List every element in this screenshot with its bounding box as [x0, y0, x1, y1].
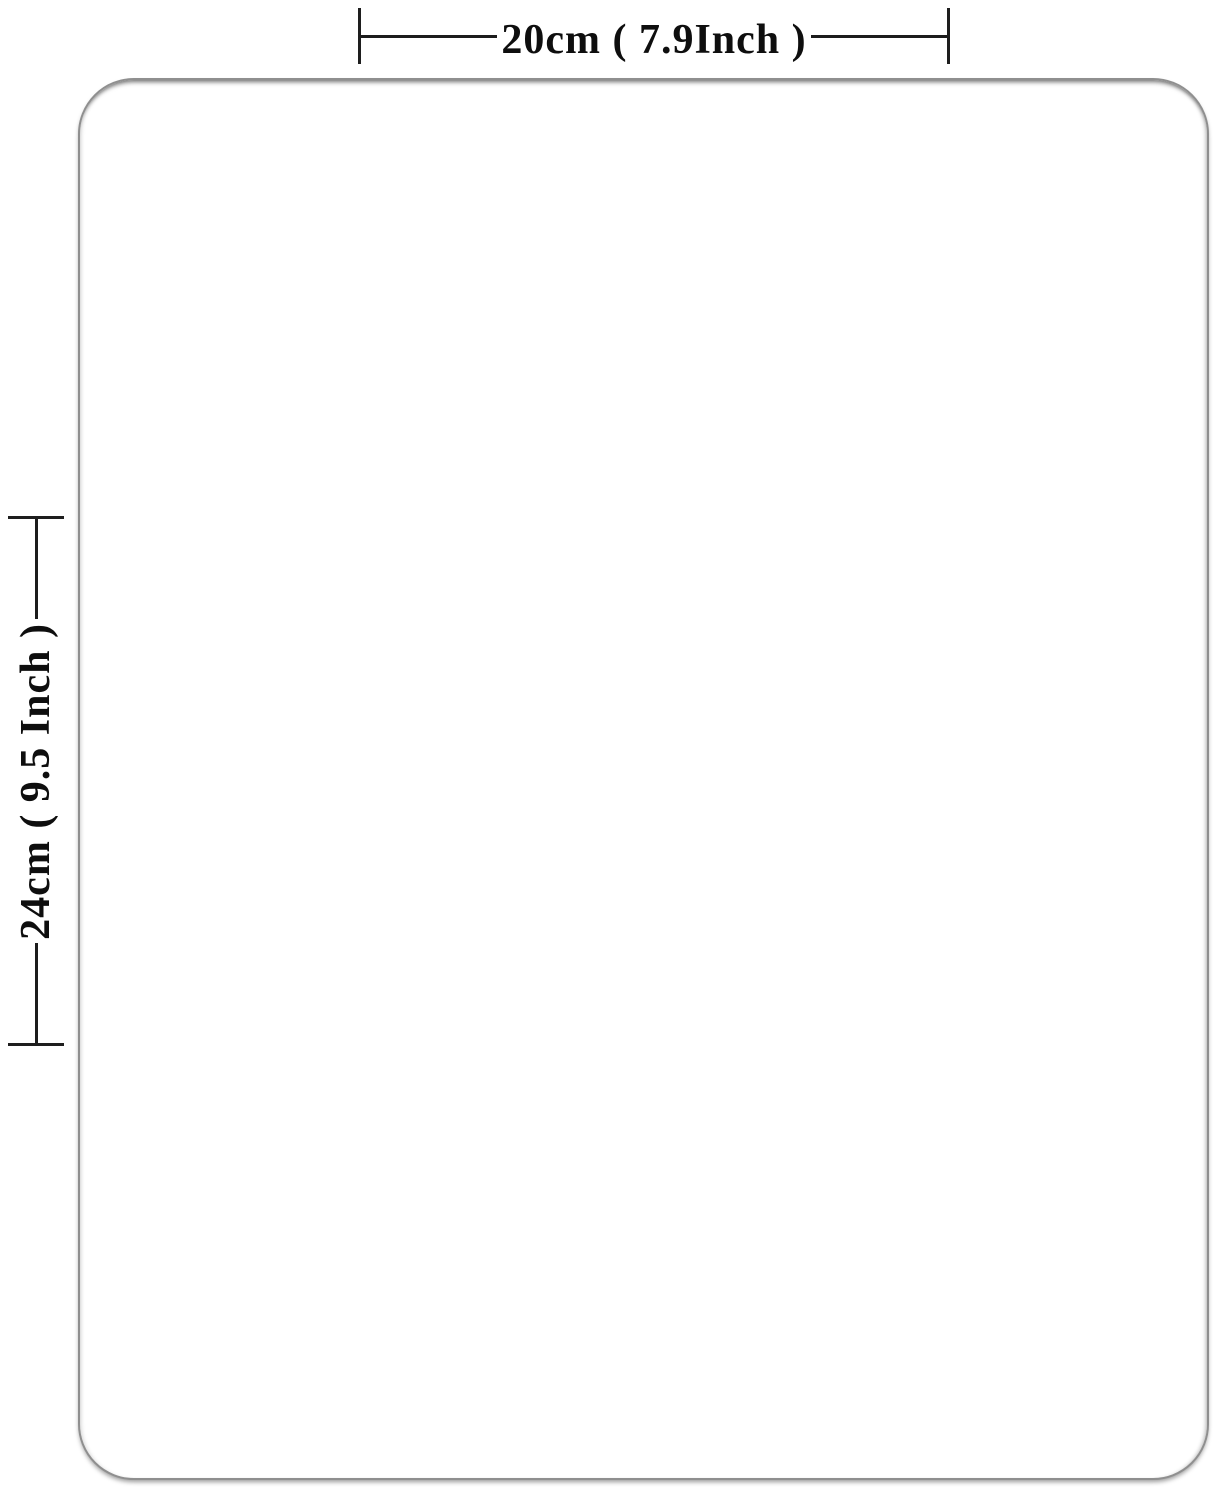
width-dimension-tick-right: [947, 8, 950, 64]
width-dimension-line-right: [811, 35, 947, 38]
width-dimension-line-left: [361, 35, 497, 38]
product-dimension-diagram: 20cm ( 7.9Inch ) 24cm ( 9.5 Inch ): [0, 0, 1217, 1492]
height-dimension-label: 24cm ( 9.5 Inch ): [15, 623, 57, 940]
height-dimension-tick-bottom: [8, 1043, 64, 1046]
width-dimension-label: 20cm ( 7.9Inch ): [501, 19, 806, 61]
width-dimension: 20cm ( 7.9Inch ): [358, 8, 950, 64]
height-dimension: 24cm ( 9.5 Inch ): [8, 516, 64, 1046]
height-dimension-line-top: [35, 519, 38, 619]
product-outline: [78, 78, 1209, 1480]
height-dimension-line-bottom: [35, 943, 38, 1043]
